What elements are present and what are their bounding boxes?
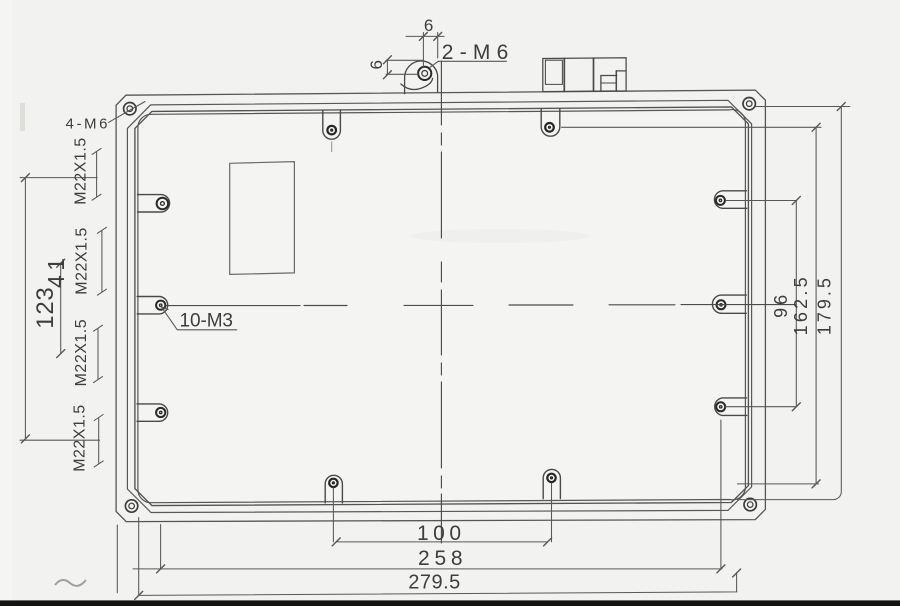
svg-text:100: 100 [417, 522, 461, 545]
svg-text:M22X1.5: M22X1.5 [74, 228, 91, 295]
svg-text:M22X1.5: M22X1.5 [73, 138, 90, 205]
svg-text:162.5: 162.5 [791, 277, 811, 335]
svg-text:10-M3: 10-M3 [180, 311, 234, 332]
svg-text:M22X1.5: M22X1.5 [72, 405, 89, 472]
svg-text:2-M6: 2-M6 [442, 41, 509, 64]
svg-text:179.5: 179.5 [815, 278, 835, 335]
svg-text:6: 6 [367, 60, 386, 69]
svg-text:258: 258 [418, 547, 463, 570]
svg-text:6: 6 [424, 16, 433, 35]
svg-text:123: 123 [32, 287, 59, 329]
svg-text:4-M6: 4-M6 [66, 116, 108, 133]
svg-text:M22X1.5: M22X1.5 [73, 319, 90, 386]
svg-text:279.5: 279.5 [408, 572, 460, 594]
